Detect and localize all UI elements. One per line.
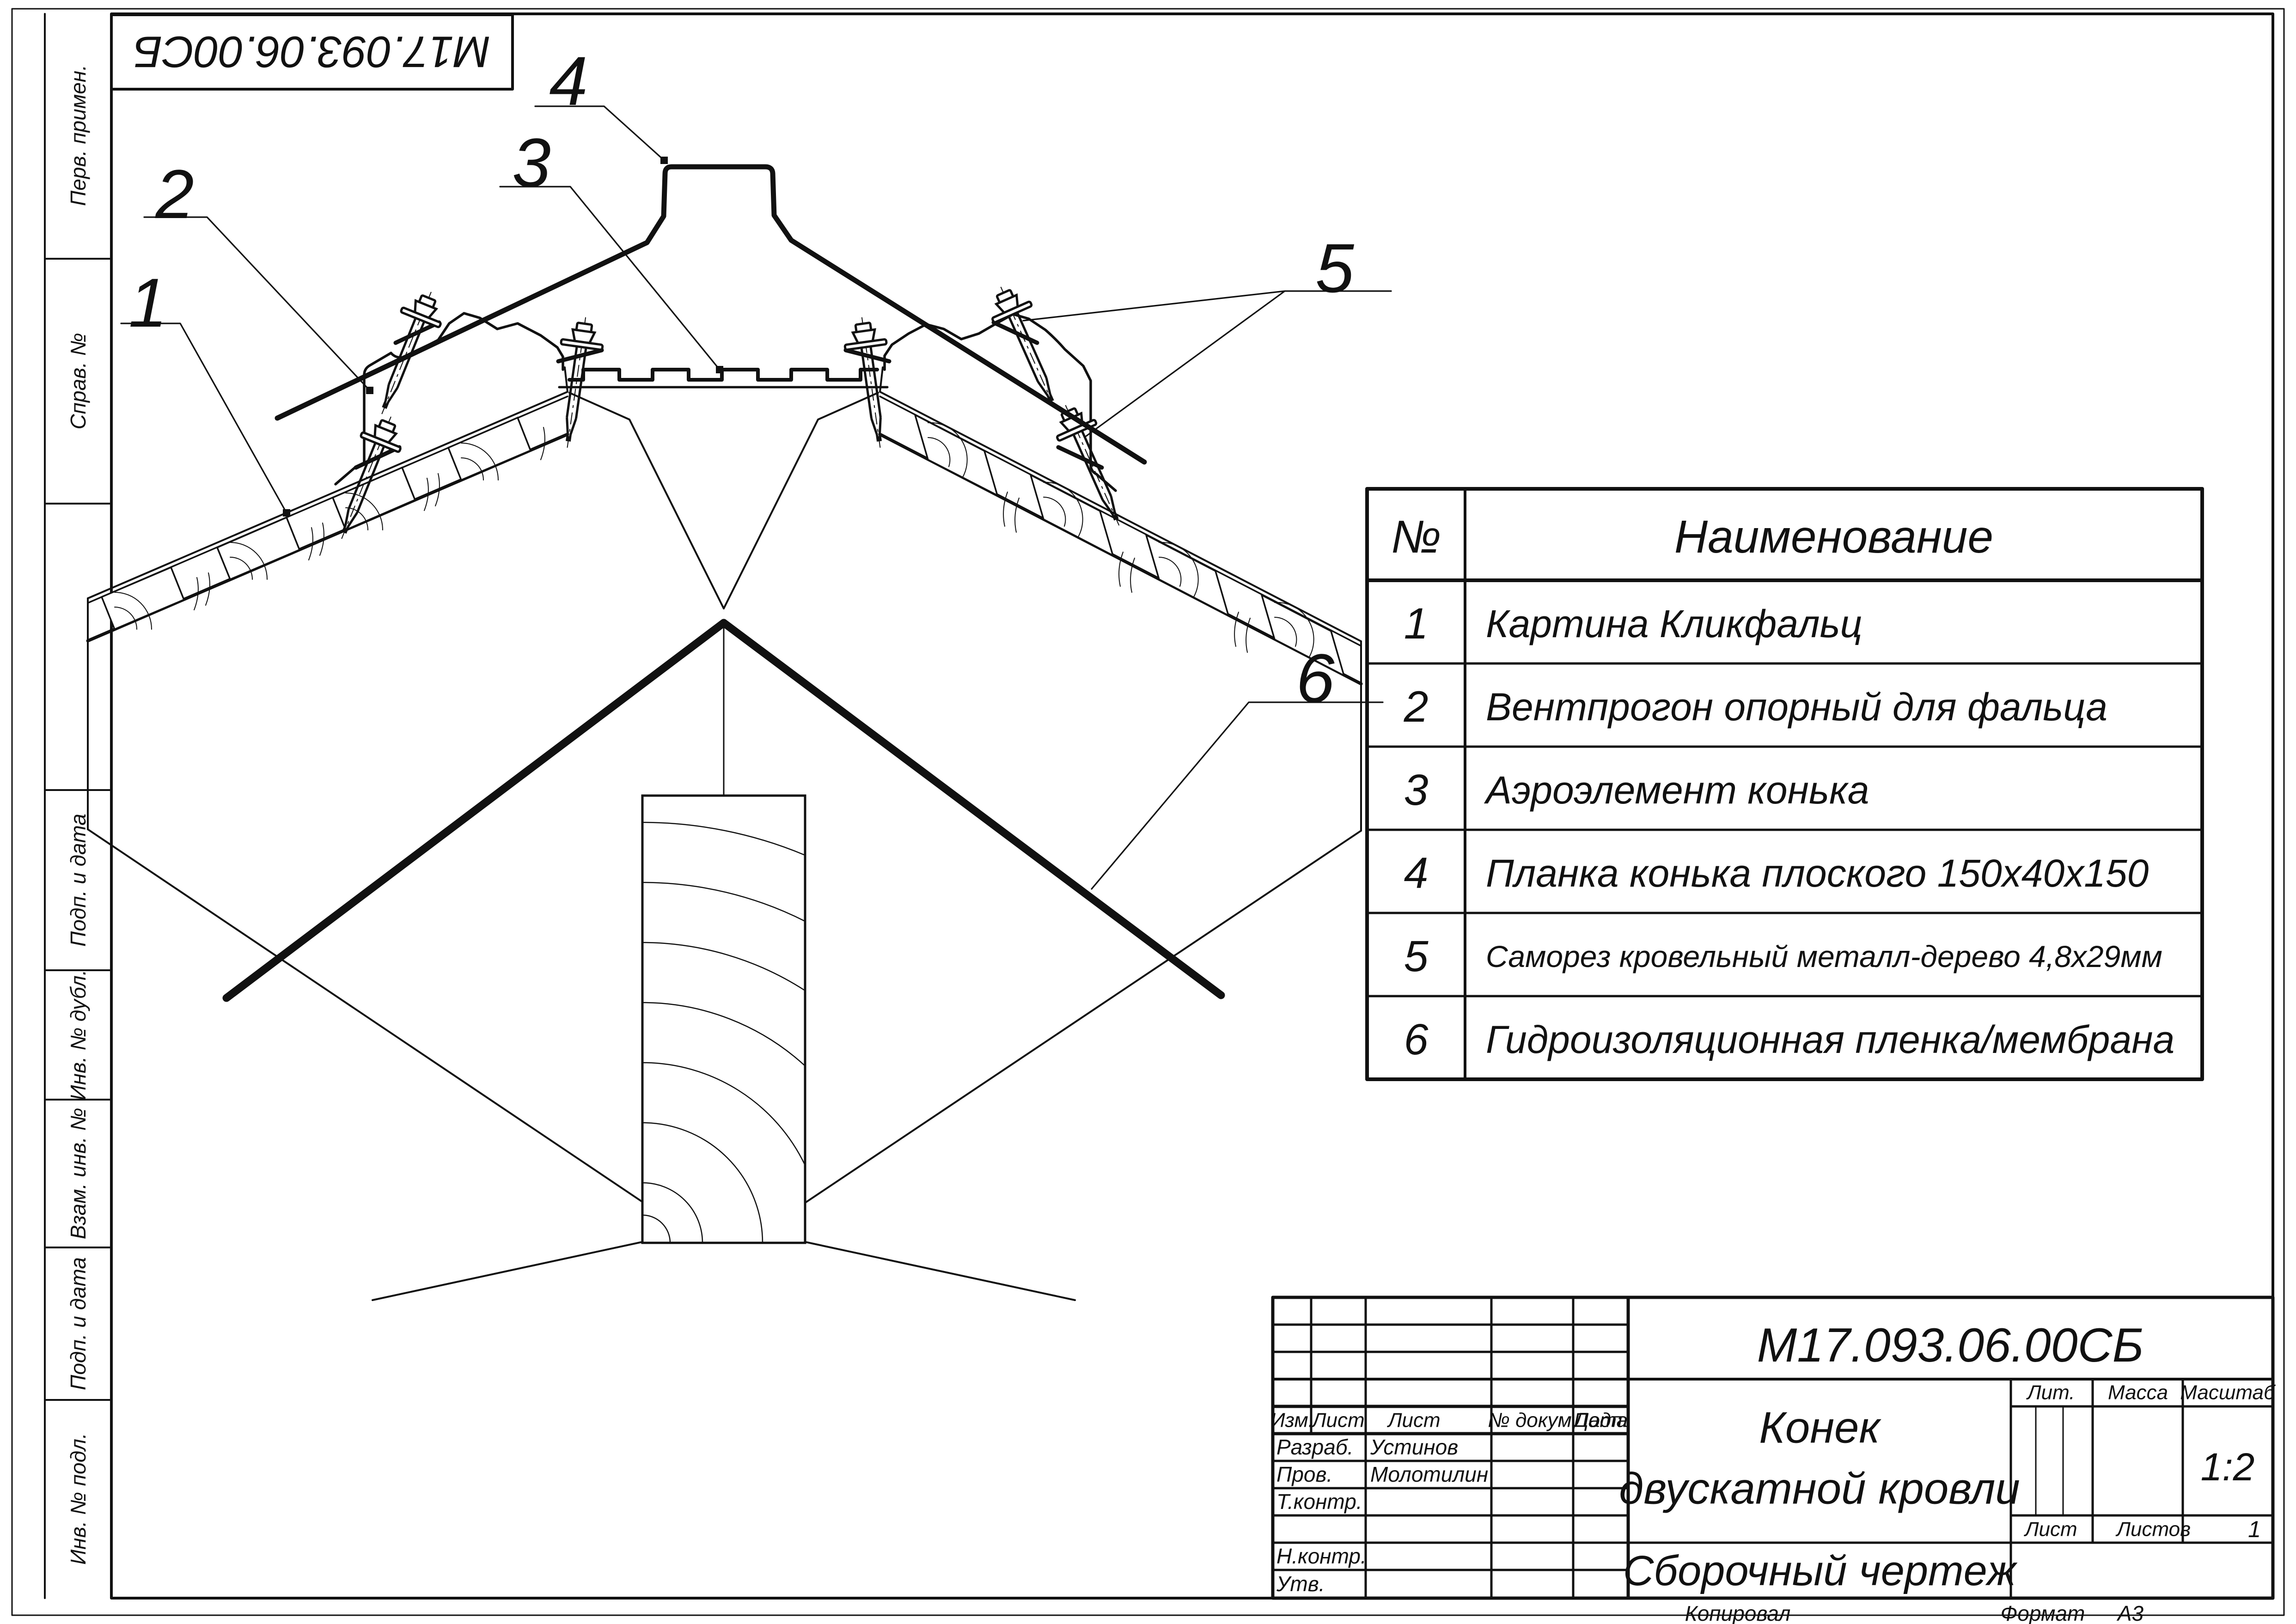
footer-kopiroval: Копировал — [1685, 1601, 1791, 1624]
tb-header-list2: Лист — [1311, 1409, 1364, 1432]
parts-table: № Наименование 1 Картина Кликфальц 2 Вен… — [1367, 489, 2202, 1079]
tb-scale-value: 1:2 — [2201, 1445, 2255, 1489]
tb-lit-label: Лит. — [2026, 1381, 2075, 1404]
screw-left-ridge — [547, 315, 606, 451]
tb-name-line2: двускатной кровли — [1619, 1464, 2020, 1514]
tb-header-data: Дата — [1572, 1409, 1628, 1432]
parts-table-row-6: 6 Гидроизоляционная пленка/мембрана — [1404, 1015, 2175, 1064]
tb-list-label: Лист — [2023, 1518, 2077, 1541]
screw-right-ridge — [841, 315, 901, 451]
margin-label-vzam-inv: Взам. инв. № — [66, 1108, 90, 1240]
parts-table-row-1: 1 Картина Кликфальц — [1404, 599, 1862, 648]
screw-left-upper — [362, 284, 450, 422]
tb-person-prov: Молотилин — [1370, 1462, 1488, 1486]
tb-doc-type: Сборочный чертеж — [1623, 1547, 2018, 1594]
callout-3-number: 3 — [512, 124, 550, 201]
callout-2: 2 — [144, 155, 373, 394]
row-3-name: Аэроэлемент конька — [1484, 768, 1869, 812]
tb-doc-number: М17.093.06.00СБ — [1757, 1319, 2144, 1372]
sheet-outer-border — [12, 9, 2284, 1615]
parts-table-row-5: 5 Саморез кровельный металл-дерево 4,8х2… — [1404, 932, 2162, 981]
left-margin-strip: Перв. примен. Справ. № Подп. и дата Инв.… — [45, 14, 111, 1598]
drawing-sheet: Перв. примен. Справ. № Подп. и дата Инв.… — [0, 0, 2296, 1624]
row-2-name: Вентпрогон опорный для фальца — [1486, 685, 2107, 729]
parts-table-header-num: № — [1391, 511, 1441, 563]
footer-format-label: Формат — [2001, 1601, 2085, 1624]
callout-4-number: 4 — [549, 42, 587, 120]
callout-4: 4 — [535, 42, 668, 164]
callout-5: 5 — [1023, 229, 1391, 436]
row-4-num: 4 — [1404, 849, 1429, 898]
callout-3: 3 — [500, 124, 723, 373]
left-battens — [102, 418, 545, 629]
tb-listov-label: Листов — [2115, 1518, 2191, 1541]
callout-1: 1 — [121, 264, 290, 517]
ridge-board — [642, 796, 805, 1243]
callout-4-marker — [660, 157, 668, 164]
callout-6-number: 6 — [1296, 639, 1335, 717]
row-3-num: 3 — [1404, 766, 1429, 815]
row-4-name: Планка конька плоского 150х40х150 — [1486, 852, 2149, 895]
callout-6: 6 — [1092, 639, 1383, 889]
row-5-num: 5 — [1404, 932, 1429, 981]
parts-table-row-3: 3 Аэроэлемент конька — [1404, 766, 1869, 815]
ridge-assembly-view: 1 2 3 4 5 6 — [88, 42, 1391, 1300]
title-block: Изм. Лист № докум. Подп. Лист Разраб. Ус… — [1270, 1297, 2276, 1598]
callout-1-marker — [283, 509, 290, 517]
top-stamp-doc-number: М17.093.06.00СБ — [134, 27, 490, 77]
margin-label-inv-podl: Инв. № подл. — [66, 1433, 90, 1564]
parts-table-row-4: 4 Планка конька плоского 150х40х150 — [1404, 849, 2149, 898]
tb-header-izm: Изм. — [1270, 1409, 1314, 1432]
tb-role-tkontr: Т.контр. — [1276, 1490, 1362, 1514]
tb-header-list: Лист — [1386, 1409, 1440, 1432]
parts-table-header-name: Наименование — [1674, 511, 1993, 563]
callout-5-number: 5 — [1315, 229, 1354, 307]
tb-name-line1: Конек — [1759, 1403, 1881, 1453]
gost-a3-drawing: Перв. примен. Справ. № Подп. и дата Инв.… — [0, 0, 2296, 1624]
callout-1-number: 1 — [128, 264, 167, 341]
tb-listov-value: 1 — [2248, 1516, 2261, 1542]
footer-row: Копировал Формат А3 — [1685, 1601, 2144, 1624]
row-1-num: 1 — [1404, 599, 1429, 648]
footer-format-value: А3 — [2116, 1601, 2144, 1624]
margin-label-sprav-no: Справ. № — [66, 333, 90, 429]
row-6-name: Гидроизоляционная пленка/мембрана — [1486, 1018, 2174, 1061]
tb-role-utv: Утв. — [1276, 1572, 1325, 1596]
margin-label-podp-data-1: Подп. и дата — [66, 814, 90, 947]
ridge-gap-right-edge — [724, 393, 878, 608]
tb-person-razrab: Устинов — [1370, 1435, 1458, 1459]
tb-header-dokum: № докум. — [1488, 1409, 1577, 1432]
tb-role-razrab: Разраб. — [1276, 1435, 1353, 1459]
margin-label-perv-primen: Перв. примен. — [66, 65, 90, 206]
row-2-num: 2 — [1404, 682, 1429, 731]
callout-3-marker — [716, 366, 723, 373]
right-vent-batten — [885, 314, 1116, 491]
callout-2-marker — [366, 387, 373, 394]
margin-label-inv-dubl: Инв. № дубл. — [66, 970, 90, 1101]
screw-right-upper — [982, 279, 1073, 416]
margin-label-podp-data-2: Подп. и дата — [66, 1257, 90, 1390]
row-5-name: Саморез кровельный металл-дерево 4,8х29м… — [1486, 939, 2162, 973]
tb-role-nkontr: Н.контр. — [1276, 1544, 1367, 1568]
tb-massa-label: Масса — [2108, 1381, 2168, 1404]
callout-2-number: 2 — [155, 155, 194, 233]
tb-role-prov: Пров. — [1276, 1462, 1332, 1486]
tb-masshtab-label: Масштаб — [2180, 1381, 2276, 1404]
row-1-name: Картина Кликфальц — [1486, 602, 1862, 645]
parts-table-row-2: 2 Вентпрогон опорный для фальца — [1404, 682, 2107, 731]
top-stamp-box: М17.093.06.00СБ — [111, 15, 513, 89]
row-6-num: 6 — [1404, 1015, 1429, 1064]
ridge-gap-left-edge — [569, 393, 724, 608]
